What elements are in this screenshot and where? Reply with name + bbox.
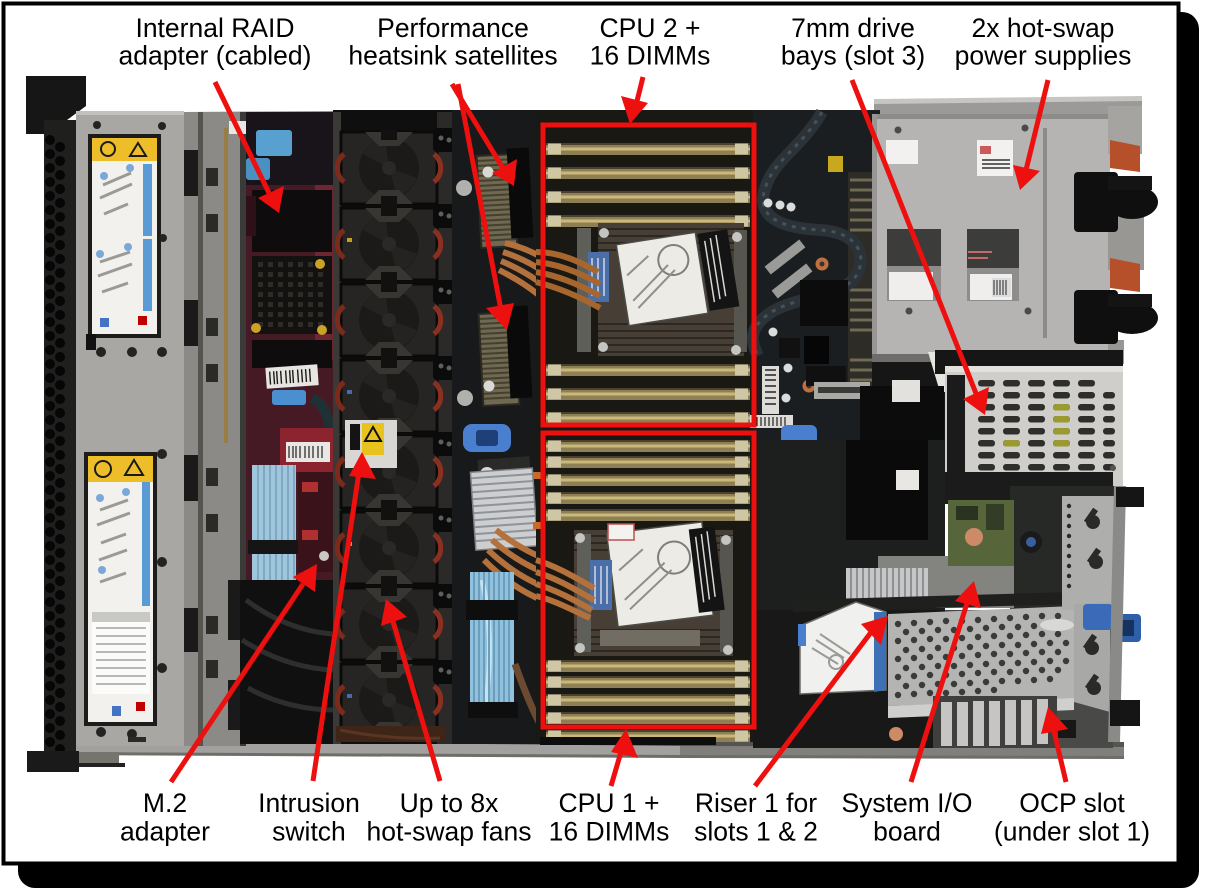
svg-text:CPU 1 +: CPU 1 + <box>559 788 660 818</box>
svg-text:Up to 8x: Up to 8x <box>400 788 499 818</box>
svg-text:Performance: Performance <box>377 13 529 43</box>
svg-text:(under slot 1): (under slot 1) <box>994 817 1150 847</box>
svg-text:CPU 2 +: CPU 2 + <box>600 13 701 43</box>
svg-text:16 DIMMs: 16 DIMMs <box>549 817 670 847</box>
svg-text:16 DIMMs: 16 DIMMs <box>590 41 711 71</box>
svg-text:Internal RAID: Internal RAID <box>135 13 294 43</box>
svg-text:System I/O: System I/O <box>841 788 972 818</box>
svg-text:heatsink satellites: heatsink satellites <box>348 41 557 71</box>
svg-text:power supplies: power supplies <box>955 41 1132 71</box>
svg-text:OCP slot: OCP slot <box>1019 788 1125 818</box>
svg-text:slots 1 & 2: slots 1 & 2 <box>694 817 818 847</box>
svg-text:2x hot-swap: 2x hot-swap <box>972 13 1115 43</box>
svg-text:7mm drive: 7mm drive <box>791 13 915 43</box>
svg-text:hot-swap fans: hot-swap fans <box>367 817 532 847</box>
svg-text:adapter: adapter <box>120 817 210 847</box>
svg-text:Riser 1 for: Riser 1 for <box>695 788 817 818</box>
svg-text:adapter (cabled): adapter (cabled) <box>119 41 312 71</box>
svg-text:M.2: M.2 <box>143 788 187 818</box>
svg-text:switch: switch <box>272 817 346 847</box>
svg-text:board: board <box>873 817 941 847</box>
svg-text:bays (slot 3): bays (slot 3) <box>781 41 925 71</box>
svg-text:Intrusion: Intrusion <box>258 788 360 818</box>
